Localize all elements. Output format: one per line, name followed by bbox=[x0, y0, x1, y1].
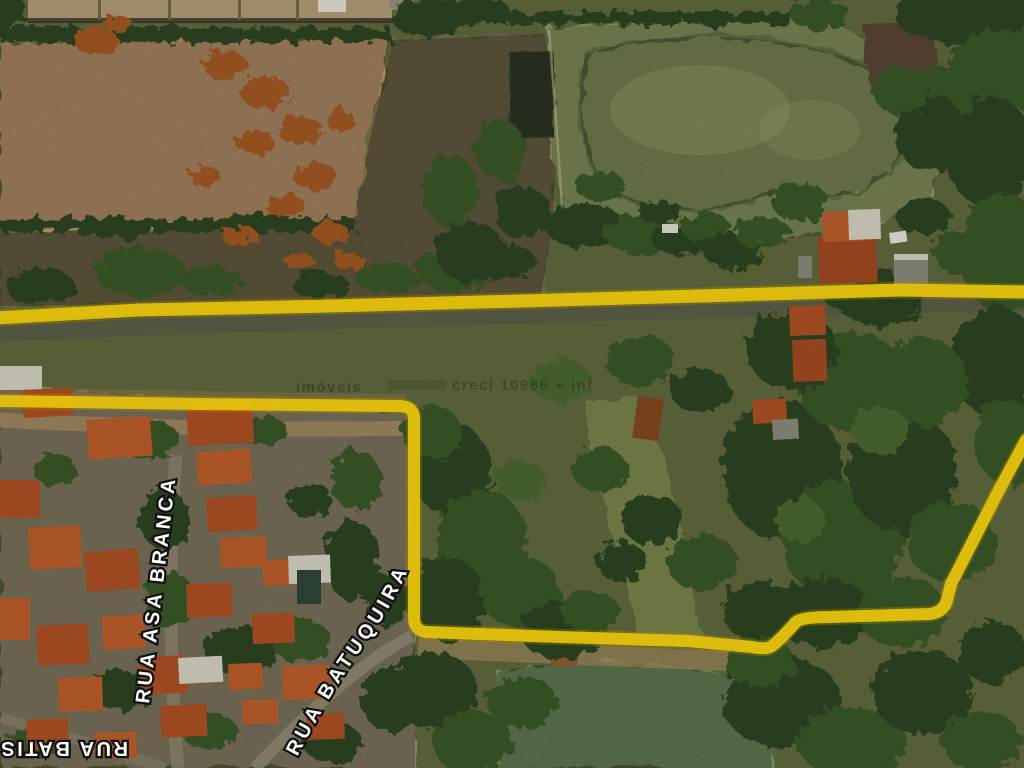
watermark-text-right: creci 10986 + inf bbox=[452, 377, 594, 394]
watermark-smudge bbox=[388, 380, 446, 390]
watermark-text-left: imóveis bbox=[296, 379, 362, 396]
map-viewport: imóveis creci 10986 + inf RUA ASA BRANCA… bbox=[0, 0, 1024, 768]
satellite-map-canvas: imóveis creci 10986 + inf RUA ASA BRANCA… bbox=[0, 0, 1024, 768]
street-label-batis: RUA BATIS bbox=[0, 737, 128, 759]
